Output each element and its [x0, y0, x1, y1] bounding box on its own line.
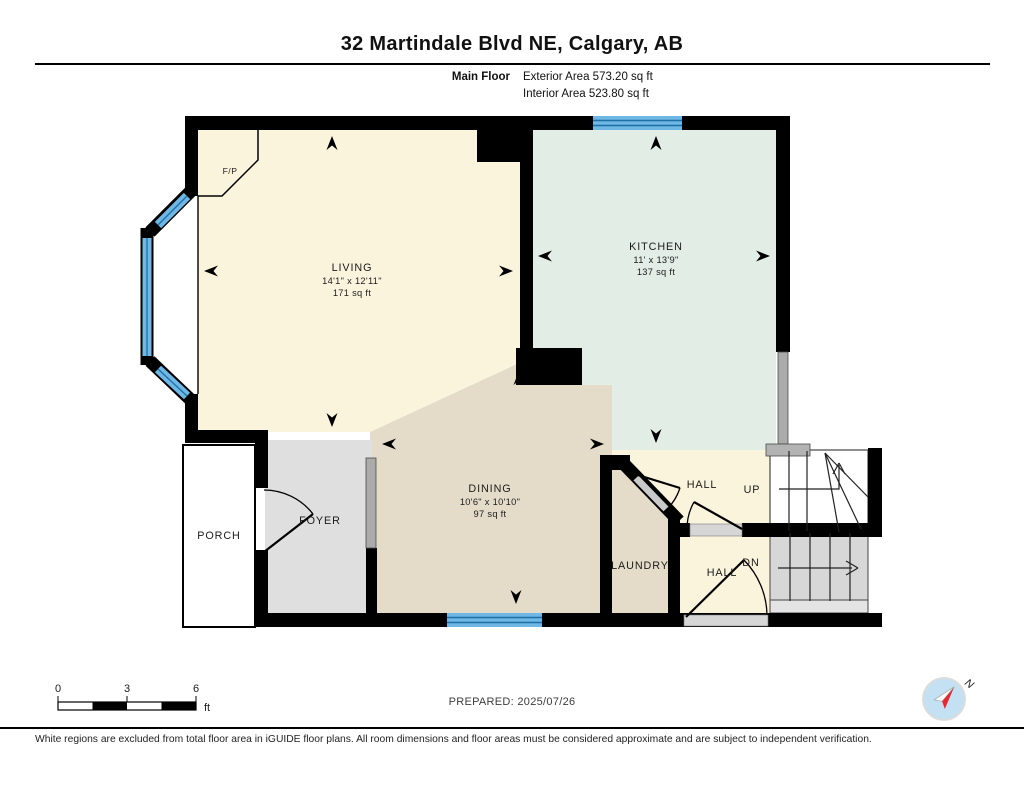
scale-tick-0: 0: [55, 683, 61, 695]
stairs-down-area: [770, 532, 868, 602]
scale-tick-3: 3: [124, 683, 130, 695]
bay-window: [147, 189, 198, 402]
stairs-down-landing: [770, 600, 868, 613]
footer-disclaimer: White regions are excluded from total fl…: [35, 734, 995, 745]
fireplace-label: F/P: [223, 166, 238, 176]
dining-sqft: 97 sq ft: [474, 509, 507, 519]
living-dims: 14'1" x 12'11": [322, 276, 382, 286]
footer-divider: [0, 727, 1024, 729]
foyer-label: FOYER: [299, 515, 341, 527]
dining-dims: 10'6" x 10'10": [460, 497, 520, 507]
stairs-up-label: UP: [744, 484, 761, 496]
exterior-door-threshold: [684, 615, 768, 626]
dining-label: DINING: [468, 483, 511, 495]
kitchen-dims: 11' x 13'9": [633, 255, 678, 265]
compass-north-label: N: [962, 677, 976, 691]
prepared-date: PREPARED: 2025/07/26: [0, 696, 1024, 708]
laundry-label: LAUNDRY: [611, 560, 669, 572]
dining-window: [447, 613, 542, 627]
hall-lower-label: HALL: [707, 567, 738, 579]
floor-plan: LIVING 14'1" x 12'11" 171 sq ft KITCHEN …: [0, 0, 1024, 791]
stair-cap: [766, 444, 810, 456]
stairs-down-label: DN: [742, 557, 759, 569]
foyer-railing: [366, 458, 376, 548]
scale-tick-6: 6: [193, 683, 199, 695]
stairs-up-area: [770, 450, 868, 532]
kitchen-label: KITCHEN: [629, 241, 683, 253]
kitchen-railing: [778, 352, 788, 444]
kitchen-sqft: 137 sq ft: [637, 267, 675, 277]
porch-label: PORCH: [197, 530, 241, 542]
living-sqft: 171 sq ft: [333, 288, 371, 298]
living-label: LIVING: [332, 262, 373, 274]
kitchen-window: [593, 116, 682, 130]
hall-upper-label: HALL: [687, 479, 718, 491]
